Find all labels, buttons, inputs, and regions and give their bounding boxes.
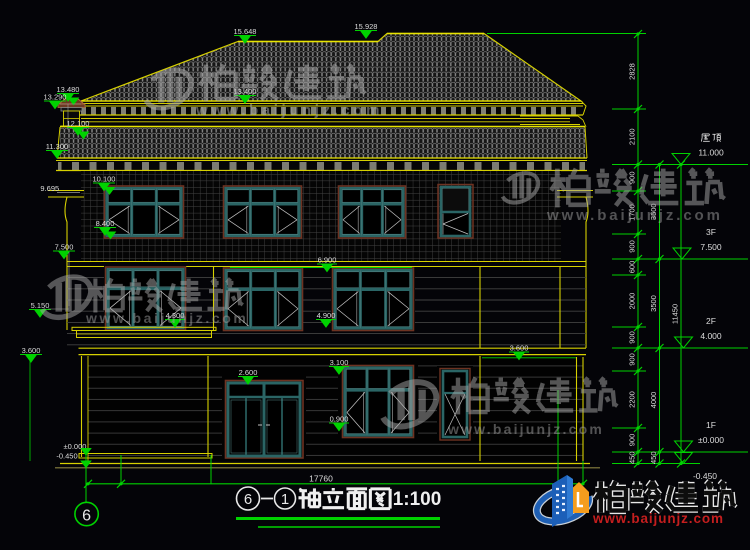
svg-text:2000: 2000 bbox=[628, 293, 637, 310]
svg-text:-0.450: -0.450 bbox=[56, 452, 77, 461]
svg-text:7.500: 7.500 bbox=[55, 243, 74, 252]
svg-text:6: 6 bbox=[244, 491, 252, 508]
svg-text:1F: 1F bbox=[706, 420, 716, 430]
svg-text:9.695: 9.695 bbox=[40, 184, 59, 193]
svg-text:6.900: 6.900 bbox=[318, 256, 337, 265]
svg-text:2828: 2828 bbox=[628, 63, 637, 80]
svg-text:15.928: 15.928 bbox=[355, 22, 378, 31]
svg-text:6: 6 bbox=[82, 508, 91, 525]
svg-text:10.100: 10.100 bbox=[93, 175, 116, 184]
svg-text:2F: 2F bbox=[706, 316, 716, 326]
svg-text:www.baijunjz.com: www.baijunjz.com bbox=[85, 310, 248, 326]
svg-text:7.500: 7.500 bbox=[700, 242, 722, 252]
svg-text:600: 600 bbox=[628, 261, 637, 274]
svg-text:1: 1 bbox=[281, 491, 289, 508]
svg-text:1:100: 1:100 bbox=[393, 489, 442, 510]
svg-text:13.290: 13.290 bbox=[44, 93, 67, 102]
svg-text:900: 900 bbox=[628, 331, 637, 344]
svg-text:450: 450 bbox=[628, 451, 637, 464]
svg-text:8.400: 8.400 bbox=[96, 219, 115, 228]
svg-text:15.648: 15.648 bbox=[234, 27, 257, 36]
svg-text:3.100: 3.100 bbox=[330, 358, 349, 367]
svg-text:5.150: 5.150 bbox=[31, 301, 50, 310]
svg-text:900: 900 bbox=[628, 240, 637, 253]
svg-text:11.000: 11.000 bbox=[698, 148, 724, 158]
svg-text:±0.000: ±0.000 bbox=[698, 435, 724, 445]
svg-text:11.300: 11.300 bbox=[46, 142, 68, 151]
svg-text:4.000: 4.000 bbox=[700, 331, 722, 341]
svg-text:www.baijunjz.com: www.baijunjz.com bbox=[546, 207, 723, 224]
svg-text:450: 450 bbox=[649, 451, 658, 464]
svg-text:-0.450: -0.450 bbox=[693, 471, 717, 481]
svg-text:2.600: 2.600 bbox=[239, 368, 258, 377]
svg-text:17760: 17760 bbox=[309, 474, 333, 484]
svg-text:3F: 3F bbox=[706, 227, 716, 237]
svg-text:2200: 2200 bbox=[628, 391, 637, 408]
svg-text:12.100: 12.100 bbox=[67, 119, 90, 128]
svg-text:www.baijunjz.com: www.baijunjz.com bbox=[447, 421, 604, 437]
svg-text:4000: 4000 bbox=[649, 392, 658, 409]
svg-text:3500: 3500 bbox=[649, 295, 658, 312]
svg-text:2100: 2100 bbox=[628, 128, 637, 145]
svg-text:900: 900 bbox=[628, 353, 637, 366]
svg-text:11450: 11450 bbox=[671, 304, 680, 324]
svg-text:900: 900 bbox=[628, 434, 637, 447]
svg-text:3.600: 3.600 bbox=[510, 344, 529, 353]
svg-text:www.baijunjz.com: www.baijunjz.com bbox=[592, 511, 724, 526]
svg-text:3.600: 3.600 bbox=[22, 346, 41, 355]
svg-text:www.baijunjz.com: www.baijunjz.com bbox=[195, 102, 383, 119]
svg-text:4.900: 4.900 bbox=[317, 311, 336, 320]
svg-text:0.900: 0.900 bbox=[330, 415, 349, 424]
